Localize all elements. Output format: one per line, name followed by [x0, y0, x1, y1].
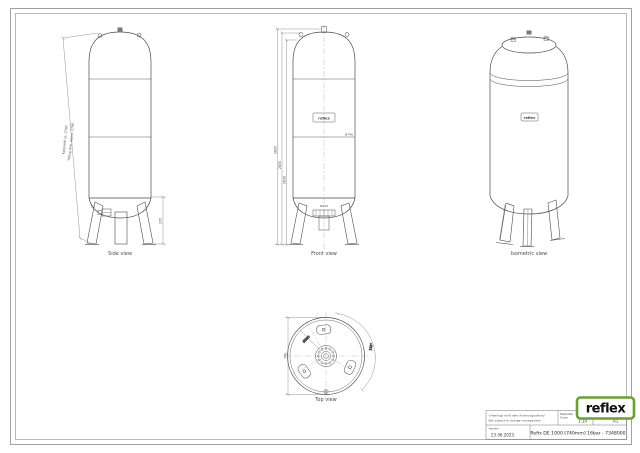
side-top-fittings	[98, 28, 141, 38]
version-date: 23.06.2023	[491, 433, 514, 438]
iso-legs	[496, 200, 565, 247]
drawing-sheet: G1 Kippmaß ca. 2790 Tilting dim. apprx. …	[0, 0, 640, 453]
top-view: 740 Ø590 120°	[282, 312, 375, 400]
side-tank-outline	[89, 32, 151, 198]
top-diameter-value: 740	[284, 353, 288, 359]
top-angle-dimension	[336, 312, 376, 392]
front-view: Ø740 reflex Ø270	[274, 25, 359, 252]
isometric-view: reflex	[490, 31, 568, 247]
front-height-dimensions	[275, 28, 321, 247]
front-bottom-connection	[313, 210, 335, 230]
reflex-logo-text: reflex	[586, 402, 627, 417]
iso-brand-sticker: reflex	[521, 113, 538, 121]
version-label: Version	[489, 427, 500, 431]
iso-weld-arc-1	[490, 73, 568, 81]
top-view-label: Top view	[314, 397, 337, 403]
top-foot-pads	[297, 325, 357, 380]
drawing-title: Refix DE 1000 [740mm] 16bar - 7348000	[530, 431, 625, 437]
iso-cap-rim	[502, 37, 556, 53]
front-brand-text: reflex	[318, 117, 330, 121]
side-connection-label: G1	[91, 205, 95, 209]
top-angle-value: 120°	[368, 342, 374, 351]
front-dim-dome: 2655	[278, 161, 282, 169]
front-diameter-text: Ø740	[345, 132, 353, 137]
isometric-view-label: Isometric view	[511, 251, 547, 257]
sheet-frame	[11, 9, 632, 445]
title-block-note-de: Unterliegt nicht dem Änderungsdienst/	[489, 413, 545, 418]
side-bottom-connection	[98, 209, 111, 216]
front-dim-body: 2630	[283, 176, 287, 184]
iso-weld-arc-2	[490, 79, 568, 87]
top-foot-circle-value: Ø590	[301, 334, 311, 344]
side-legs	[85, 202, 156, 245]
front-dim-total: 2685	[274, 146, 278, 154]
iso-brand-text: reflex	[524, 116, 536, 120]
reflex-logo: reflex	[577, 398, 634, 419]
side-view-label: Side view	[108, 251, 132, 257]
side-conn-height-value: 235	[159, 218, 163, 224]
iso-top-fittings	[511, 31, 549, 42]
title-block-note-en: Not subject to change management	[489, 419, 542, 423]
iso-dome-left	[490, 47, 502, 74]
scale-label-en: Scale	[560, 416, 568, 420]
side-bottom-dome	[89, 198, 151, 218]
front-view-label: Front view	[311, 251, 337, 257]
top-centerlines	[282, 312, 370, 400]
drawing-canvas: G1 Kippmaß ca. 2790 Tilting dim. apprx. …	[0, 0, 640, 453]
front-bottom-dim: Ø270	[320, 203, 328, 208]
iso-dome-right	[556, 47, 568, 74]
side-view: G1 Kippmaß ca. 2790 Tilting dim. apprx. …	[62, 28, 167, 246]
